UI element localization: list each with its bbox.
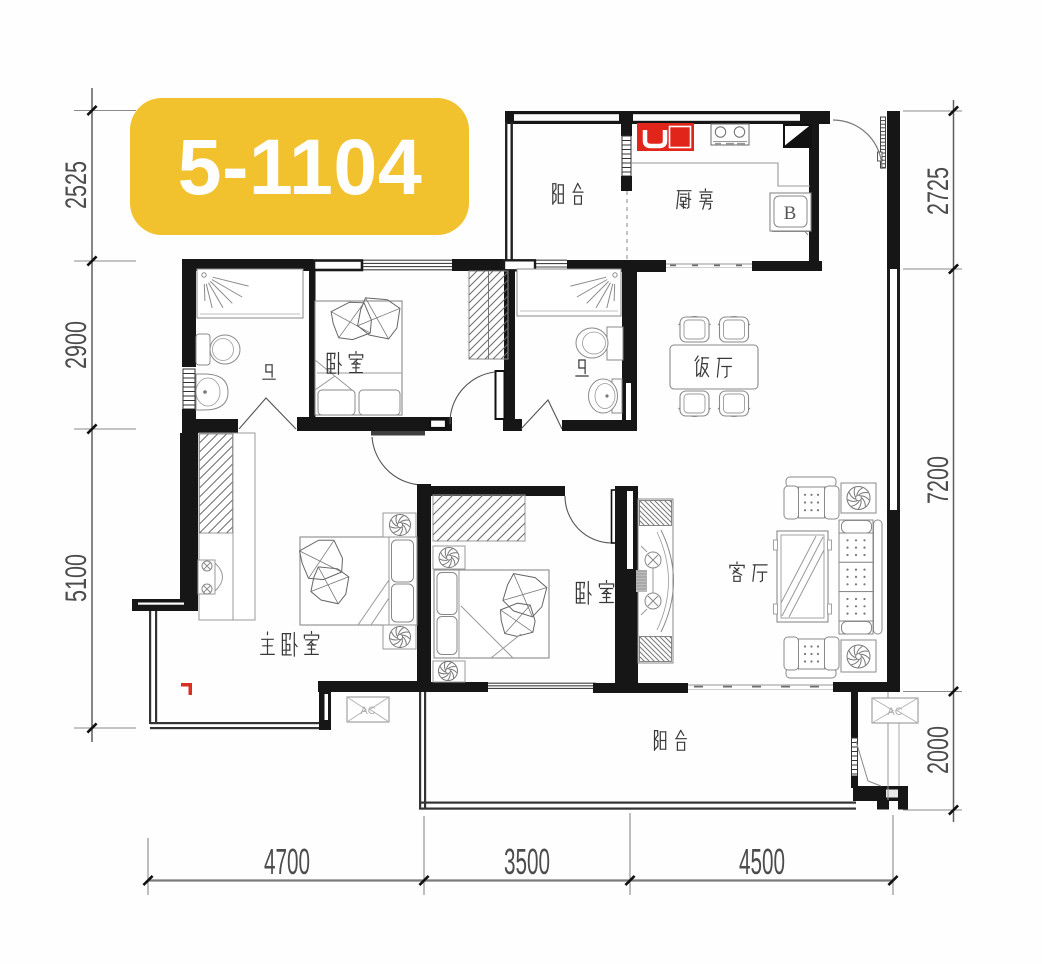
svg-text:AC: AC bbox=[887, 706, 902, 718]
svg-text:B: B bbox=[784, 203, 797, 224]
svg-text:2525: 2525 bbox=[60, 161, 93, 209]
svg-text:2900: 2900 bbox=[60, 321, 93, 369]
svg-text:2725: 2725 bbox=[922, 167, 955, 215]
svg-text:4700: 4700 bbox=[264, 841, 310, 882]
svg-text:4500: 4500 bbox=[739, 841, 785, 882]
svg-text:5-1104: 5-1104 bbox=[178, 122, 423, 211]
svg-text:2000: 2000 bbox=[922, 726, 955, 774]
svg-text:7200: 7200 bbox=[922, 456, 955, 504]
svg-text:AC: AC bbox=[360, 705, 375, 717]
svg-text:3500: 3500 bbox=[504, 841, 550, 882]
svg-text:5100: 5100 bbox=[60, 554, 93, 602]
